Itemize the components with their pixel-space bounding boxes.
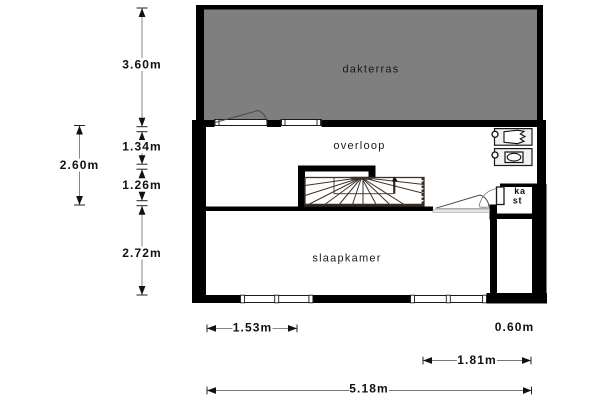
svg-text:ka: ka	[514, 186, 526, 196]
svg-text:1.26m: 1.26m	[122, 178, 162, 192]
svg-text:0.60m: 0.60m	[495, 320, 535, 334]
svg-text:st: st	[513, 196, 522, 206]
svg-text:2.60m: 2.60m	[60, 158, 100, 172]
svg-text:5.18m: 5.18m	[349, 382, 389, 396]
svg-text:slaapkamer: slaapkamer	[312, 253, 381, 265]
svg-text:overloop: overloop	[333, 140, 385, 152]
svg-text:1.53m: 1.53m	[233, 321, 273, 335]
svg-text:dakterras: dakterras	[342, 64, 399, 76]
svg-text:2.72m: 2.72m	[122, 246, 162, 260]
svg-text:1.34m: 1.34m	[122, 139, 162, 153]
svg-text:1.81m: 1.81m	[457, 353, 497, 367]
svg-text:3.60m: 3.60m	[122, 58, 162, 72]
